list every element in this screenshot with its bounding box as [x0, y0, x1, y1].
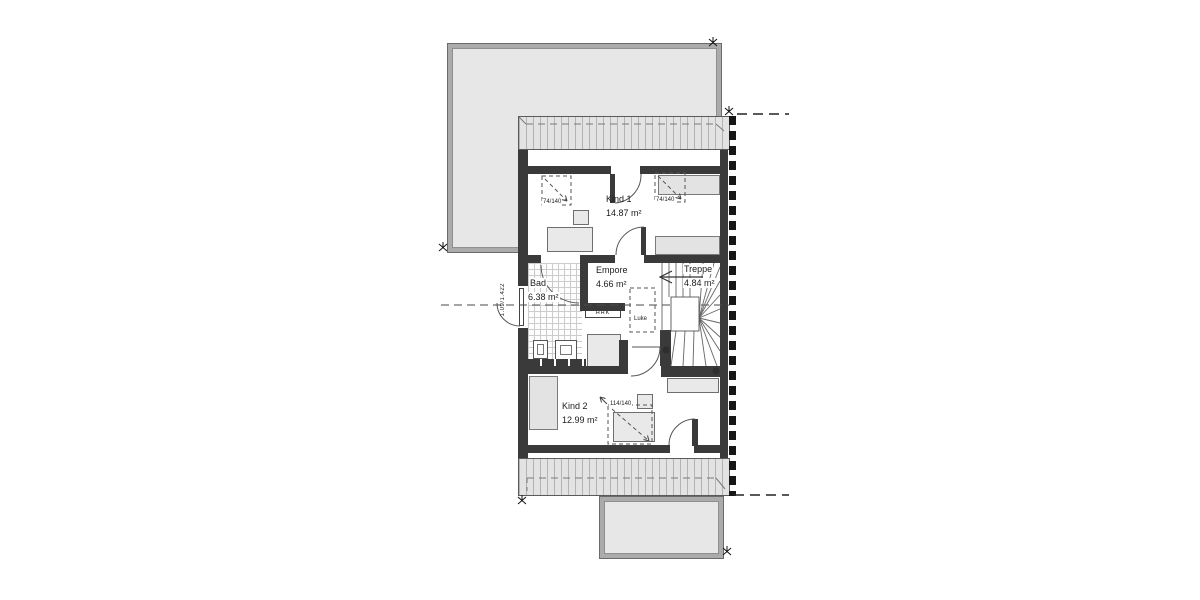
stair-post-dot-left	[663, 347, 670, 354]
room-label-treppe-name: Treppe	[683, 264, 713, 274]
window-dim-label: 1.09/1.422	[500, 283, 506, 316]
room-label-kind2-area: 12.99 m²	[562, 415, 598, 425]
room-label-empore-area: 4.66 m²	[596, 279, 627, 289]
hatch-luke-label: Luke	[633, 316, 648, 323]
floor-plan-canvas: HHK	[0, 0, 1200, 600]
door-arc-storage	[669, 419, 695, 445]
room-label-kind2-name: Kind 2	[562, 401, 588, 411]
room-label-treppe-area: 4.84 m²	[683, 278, 716, 288]
skylight-label-right: 74/140	[655, 197, 675, 204]
band-top-dashes	[519, 117, 724, 131]
band-bottom-dashes	[527, 478, 725, 491]
stair-void	[671, 297, 699, 331]
survey-marker-icon	[439, 37, 733, 555]
plan-linework	[0, 0, 1200, 600]
room-label-empore-name: Empore	[596, 265, 628, 275]
hatch-luke-outline	[630, 288, 655, 332]
skylight-label-left: 74/140	[542, 199, 562, 206]
door-arc-kind2	[631, 347, 660, 376]
room-label-kind1-area: 14.87 m²	[606, 208, 642, 218]
room-label-bad-name: Bad	[529, 278, 547, 288]
stair-post-dot-right	[713, 368, 720, 375]
door-leaf-kind1-bottom	[641, 227, 646, 255]
door-leaf-storage	[692, 419, 698, 446]
skylight-label-kind2: 114/140	[609, 401, 632, 408]
room-label-bad-area: 6.38 m²	[527, 292, 560, 302]
room-label-kind1-name: Kind 1	[606, 194, 632, 204]
door-arc-kind1-bottom	[616, 227, 644, 255]
